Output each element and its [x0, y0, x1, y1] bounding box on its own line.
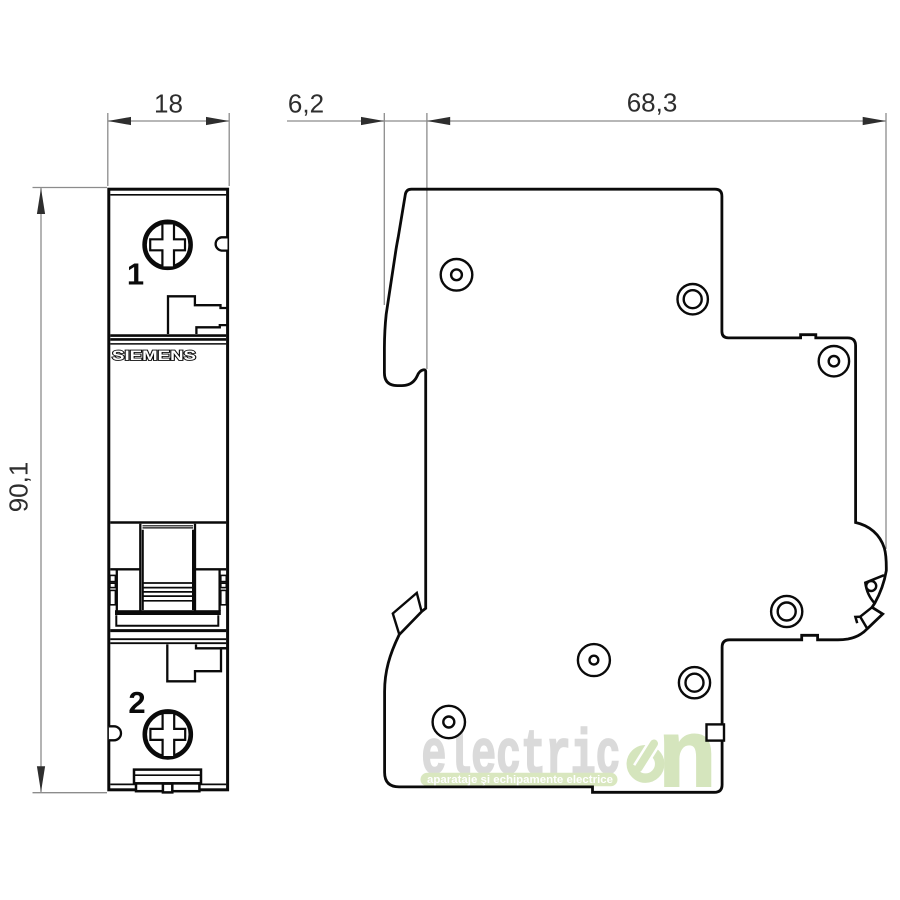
- svg-text:90,1: 90,1: [4, 462, 34, 513]
- svg-text:68,3: 68,3: [627, 88, 678, 118]
- svg-text:2: 2: [128, 685, 145, 720]
- svg-text:aparataje şi echipamente elect: aparataje şi echipamente electrice: [427, 774, 613, 786]
- svg-text:18: 18: [154, 89, 183, 119]
- svg-text:n: n: [659, 706, 717, 815]
- svg-text:1: 1: [127, 257, 144, 292]
- svg-text:6,2: 6,2: [288, 89, 324, 119]
- svg-text:SIEMENS: SIEMENS: [112, 347, 196, 363]
